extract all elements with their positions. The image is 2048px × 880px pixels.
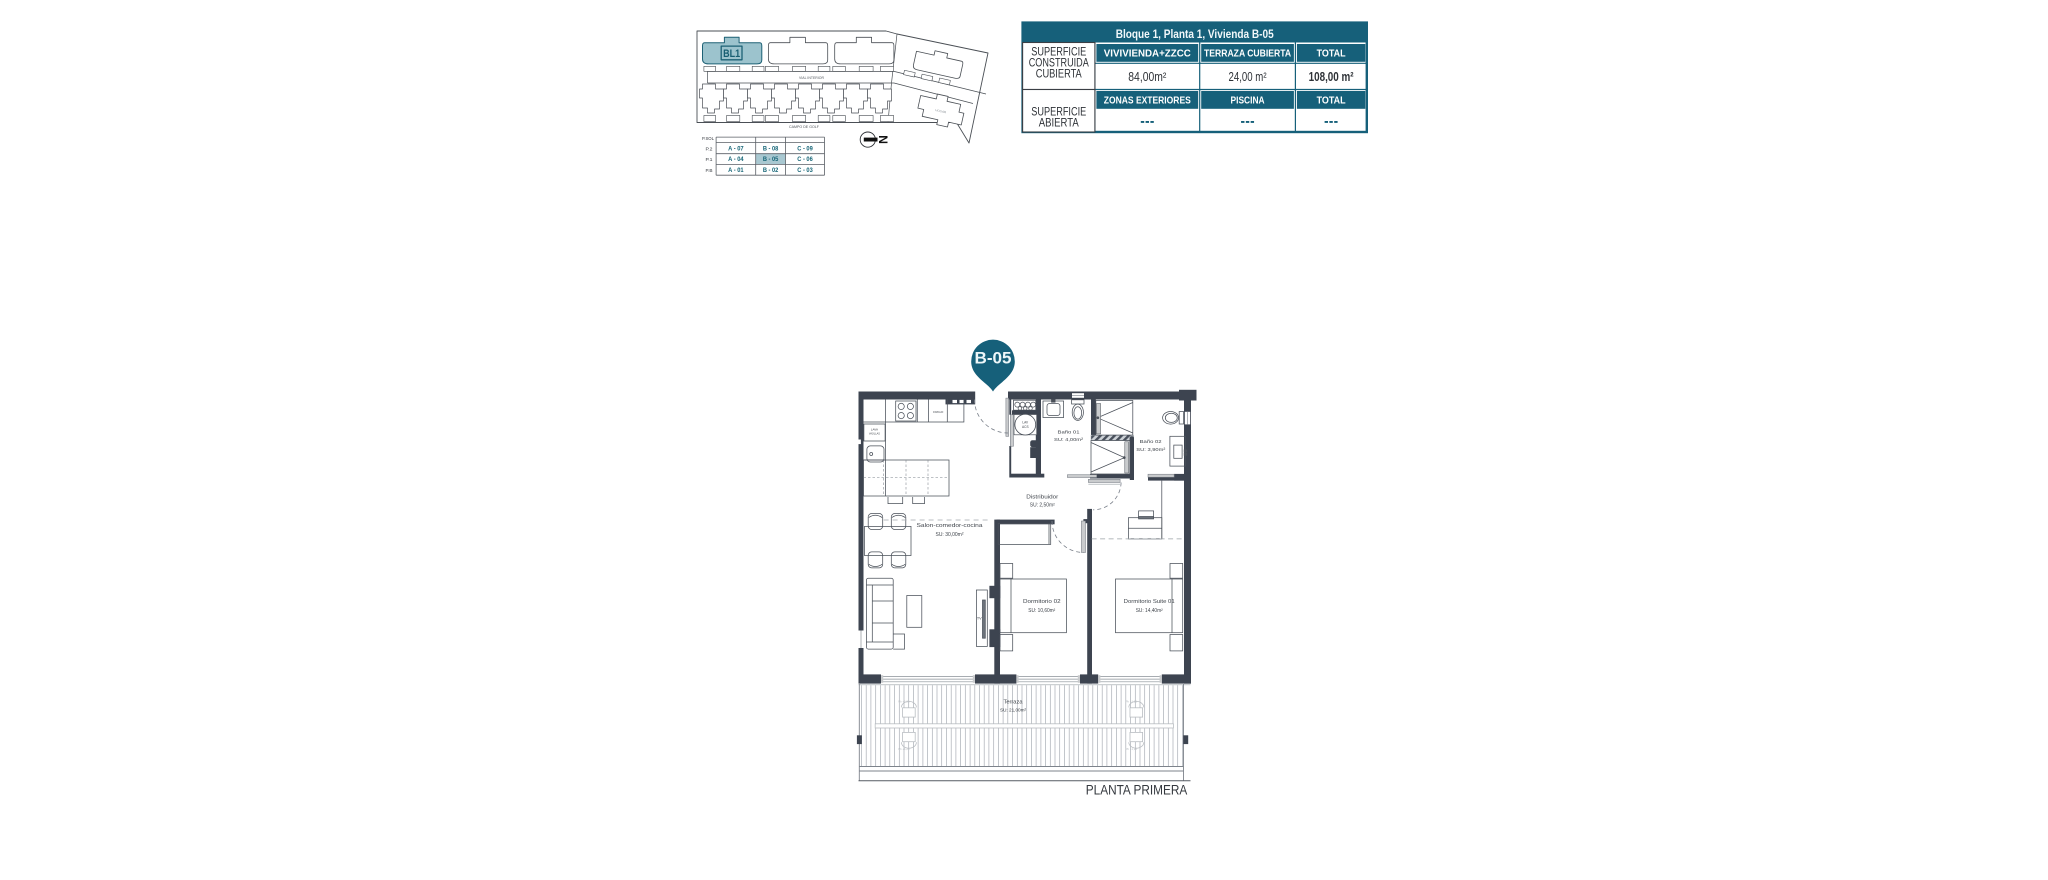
svg-text:P.SOL: P.SOL <box>702 136 714 141</box>
svg-text:P.B: P.B <box>706 168 713 173</box>
svg-text:Salon-comedor-cocina: Salon-comedor-cocina <box>917 523 984 529</box>
svg-text:Terraza: Terraza <box>1004 700 1023 706</box>
svg-text:C - 03: C - 03 <box>797 167 813 174</box>
svg-text:SU: 3,90m²: SU: 3,90m² <box>1136 447 1166 452</box>
svg-text:108,00 m²: 108,00 m² <box>1309 70 1354 84</box>
svg-text:SU: 30,00m²: SU: 30,00m² <box>936 532 964 538</box>
svg-text:C - 09: C - 09 <box>797 145 813 152</box>
svg-text:SU: 2,50m²: SU: 2,50m² <box>1030 503 1055 509</box>
svg-text:CUBIERTA: CUBIERTA <box>1036 67 1082 81</box>
svg-text:CAMPO DE GOLF: CAMPO DE GOLF <box>789 125 820 129</box>
svg-text:B - 08: B - 08 <box>763 145 779 152</box>
svg-text:Pb +1,25: Pb +1,25 <box>1126 747 1138 751</box>
svg-text:N: N <box>876 135 890 144</box>
svg-text:TOTAL: TOTAL <box>1317 48 1346 60</box>
svg-text:Pb +1,25: Pb +1,25 <box>1126 700 1138 704</box>
svg-text:VAJILLAS: VAJILLAS <box>869 431 880 435</box>
svg-text:FRIGO: FRIGO <box>933 410 944 414</box>
svg-text:SU: 14,40m²: SU: 14,40m² <box>1136 608 1163 614</box>
svg-text:Distribuidor: Distribuidor <box>1026 494 1058 500</box>
svg-text:ZONAS EXTERIORES: ZONAS EXTERIORES <box>1104 95 1191 107</box>
svg-text:Pb +1,25: Pb +1,25 <box>898 700 910 704</box>
svg-text:SU: 21,00m²: SU: 21,00m² <box>1000 708 1026 714</box>
svg-text:24,00 m²: 24,00 m² <box>1229 70 1267 84</box>
svg-text:A - 07: A - 07 <box>728 145 744 152</box>
svg-text:VIVIVIENDA+ZZCC: VIVIVIENDA+ZZCC <box>1104 48 1191 60</box>
svg-text:BL1: BL1 <box>723 48 740 60</box>
svg-text:SU: 4,00m²: SU: 4,00m² <box>1054 437 1084 442</box>
svg-text:A - 01: A - 01 <box>728 167 744 174</box>
svg-text:Baño 01: Baño 01 <box>1058 429 1080 435</box>
svg-text:P.1: P.1 <box>706 157 713 162</box>
svg-text:Dormitorio 02: Dormitorio 02 <box>1023 599 1061 605</box>
svg-text:Dormitorio Suite 01: Dormitorio Suite 01 <box>1124 599 1175 605</box>
svg-text:B-05: B-05 <box>975 349 1012 368</box>
svg-text:84,00m²: 84,00m² <box>1128 70 1166 84</box>
svg-text:PLANTA PRIMERA: PLANTA PRIMERA <box>1086 783 1188 798</box>
svg-text:P.2: P.2 <box>706 147 713 152</box>
svg-text:TV: TV <box>977 617 982 621</box>
svg-text:Baño 02: Baño 02 <box>1140 439 1162 445</box>
svg-text:A - 04: A - 04 <box>728 156 744 163</box>
svg-text:B - 02: B - 02 <box>763 167 779 174</box>
svg-text:Bloque 1, Planta 1, Vivienda B: Bloque 1, Planta 1, Vivienda B-05 <box>1116 27 1274 41</box>
svg-text:ABIERTA: ABIERTA <box>1039 116 1079 130</box>
svg-text:ACS: ACS <box>1022 425 1029 429</box>
svg-text:PISCINA: PISCINA <box>1231 95 1265 107</box>
svg-text:VIAL INTERIOR: VIAL INTERIOR <box>799 76 825 80</box>
svg-text:TERRAZA CUBIERTA: TERRAZA CUBIERTA <box>1204 48 1291 60</box>
svg-text:TOTAL: TOTAL <box>1317 95 1346 107</box>
svg-text:SU: 10,60m²: SU: 10,60m² <box>1028 608 1055 614</box>
svg-text:B - 05: B - 05 <box>763 156 779 163</box>
svg-text:C - 06: C - 06 <box>797 156 813 163</box>
svg-text:Pb +1,25: Pb +1,25 <box>898 747 910 751</box>
